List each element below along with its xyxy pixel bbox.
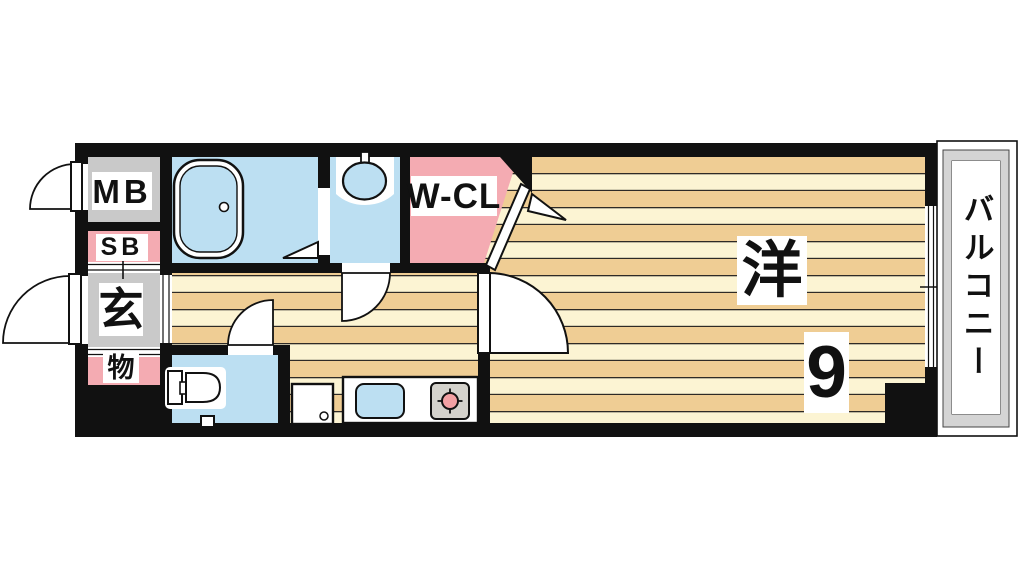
room-label-western-room: 洋 <box>737 236 807 305</box>
toilet-bowl <box>186 373 220 402</box>
wall-mb-sb-divider <box>88 222 160 231</box>
floor-plan-drawing <box>0 0 1024 576</box>
room-label-storage: 物 <box>103 353 139 383</box>
washroom-door-opening <box>342 263 390 273</box>
room-label-meter-box: MB <box>92 172 152 210</box>
refrigerator-dot <box>320 412 328 420</box>
toilet-door-opening <box>228 345 273 355</box>
kitchen <box>292 377 478 424</box>
bathtub-drain-knob <box>220 203 229 212</box>
room-size-western-room: 9 <box>804 332 849 413</box>
washbasin-bowl <box>343 163 386 200</box>
entrance-door-swing <box>3 276 70 343</box>
kitchen-sink <box>356 384 404 418</box>
sb-entrance-divider <box>88 262 160 273</box>
bathtub <box>174 160 243 258</box>
toilet-paper-holder <box>201 416 214 427</box>
wall-block-below-storage <box>75 385 172 437</box>
mainroom-door-leaf <box>478 273 490 353</box>
wall-mid-horizontal <box>170 263 490 273</box>
room-label-shoe-box: SB <box>96 234 148 261</box>
mb-door-leaf <box>71 162 82 211</box>
entrance-door-leaf <box>69 274 81 344</box>
room-label-balcony: バルコニー <box>952 161 1000 414</box>
entrance-hall-passage <box>160 275 172 343</box>
room-label-walk-in-closet: W-CL <box>411 176 497 216</box>
washbasin <box>336 152 394 205</box>
wall-top <box>75 143 937 157</box>
wall-pillar-bottom-right <box>885 383 937 437</box>
bath-door-opening <box>318 188 330 255</box>
mb-door-swing <box>30 164 75 209</box>
wall-toilet-right <box>278 345 290 433</box>
floor-plan-page: MB SB 玄 物 W-CL 洋 9 バルコニー <box>0 0 1024 576</box>
stove-burner <box>442 393 458 409</box>
room-label-entrance: 玄 <box>99 283 143 336</box>
